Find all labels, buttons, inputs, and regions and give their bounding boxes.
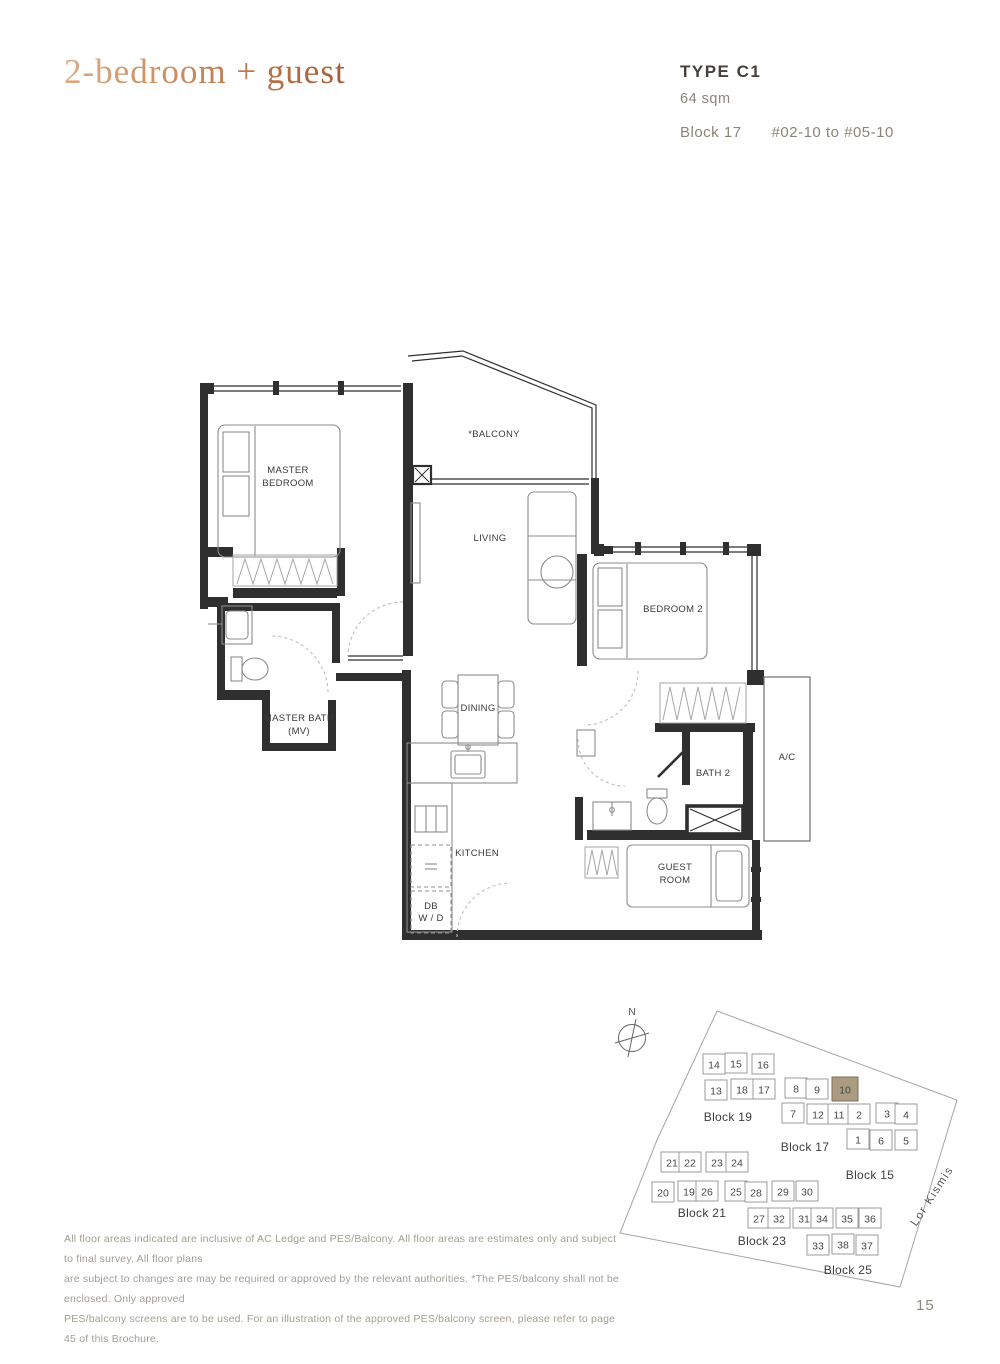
sitemap-unit-number: 14: [708, 1060, 720, 1072]
site-buildings: 1415161318178910712112341652122232420192…: [652, 1053, 917, 1255]
sitemap-unit-number: 24: [731, 1158, 743, 1170]
fridge: [411, 845, 451, 887]
sitemap-unit-number: 29: [777, 1187, 789, 1199]
sitemap-unit-number: 26: [701, 1187, 713, 1199]
sitemap-unit-number: 28: [750, 1188, 762, 1200]
disclaimer-line: PES/balcony screens are to be used. For …: [64, 1309, 624, 1349]
room-label-kitchen: KITCHEN: [455, 848, 499, 859]
unit-range: #02-10 to #05-10: [772, 124, 894, 141]
sitemap-block-label: Block 17: [781, 1140, 829, 1154]
room-label-guest: GUESTROOM: [658, 862, 692, 886]
sitemap-unit-number: 17: [758, 1085, 770, 1097]
washer-dryer: [411, 891, 451, 933]
sitemap-unit-number: 31: [798, 1214, 810, 1226]
sitemap-unit-number: 20: [657, 1188, 669, 1200]
sitemap-unit-number: 9: [814, 1085, 820, 1097]
toilet-1: [231, 657, 242, 681]
sitemap-unit-number: 23: [711, 1158, 723, 1170]
sitemap-unit-number: 34: [816, 1214, 828, 1226]
sitemap-unit-number: 35: [841, 1214, 853, 1226]
sitemap-unit-number: 27: [753, 1214, 765, 1226]
sitemap-unit-number: 11: [834, 1110, 845, 1122]
sitemap-unit-number: 18: [736, 1085, 748, 1097]
sitemap-block-label: Block 19: [704, 1110, 752, 1124]
round-chair: [541, 556, 573, 588]
room-label-ac: A/C: [779, 752, 796, 763]
brochure-page: 2-bedroom + guest TYPE C1 64 sqm Block 1…: [0, 0, 1000, 1364]
floor-plan: MASTERBEDROOM *BALCONY LIVING BEDROOM 2 …: [195, 340, 845, 955]
sitemap-unit-number: 33: [812, 1241, 824, 1253]
unit-area: 64 sqm: [680, 91, 894, 107]
sitemap-unit-number: 38: [837, 1240, 849, 1252]
sitemap-block-label: Block 25: [824, 1263, 872, 1277]
sitemap-unit-number: 16: [757, 1060, 769, 1072]
sitemap-unit-number: 19: [683, 1187, 695, 1199]
unit-location: Block 17 #02-10 to #05-10: [680, 124, 894, 141]
sitemap-block-label: Block 23: [738, 1234, 786, 1248]
room-label-bath2: BATH 2: [696, 768, 730, 779]
page-title: 2-bedroom + guest: [64, 52, 346, 92]
unit-info-header: TYPE C1 64 sqm Block 17 #02-10 to #05-10: [680, 62, 894, 141]
unit-type: TYPE C1: [680, 62, 894, 82]
sitemap-unit-number: 13: [710, 1086, 722, 1098]
site-map: N 14151613181789107121123416521222324201…: [608, 1002, 1000, 1302]
sofa: [528, 492, 576, 624]
sitemap-unit-number: 12: [812, 1110, 824, 1122]
disclaimer-line: All floor areas indicated are inclusive …: [64, 1229, 624, 1269]
room-label-dining: DINING: [460, 703, 495, 714]
sitemap-unit-number: 25: [730, 1187, 742, 1199]
room-label-master-bath: MASTER BATH(MV): [264, 713, 334, 737]
room-label-master-bedroom: MASTERBEDROOM: [262, 465, 313, 489]
sitemap-unit-number: 37: [861, 1241, 873, 1253]
room-label-bedroom2: BEDROOM 2: [643, 604, 703, 615]
sitemap-unit-number: 10: [839, 1085, 851, 1097]
cooktop: [415, 806, 447, 832]
road-label: Lor Kismis: [909, 1164, 956, 1228]
sitemap-unit-number: 8: [793, 1084, 799, 1096]
room-label-living: LIVING: [474, 533, 507, 544]
master-bed: [218, 425, 340, 557]
sitemap-unit-number: 15: [730, 1059, 742, 1071]
sitemap-unit-number: 5: [903, 1136, 909, 1148]
sitemap-unit-number: 30: [801, 1187, 813, 1199]
sitemap-unit-number: 7: [790, 1109, 796, 1121]
sitemap-unit-number: 2: [856, 1110, 862, 1122]
sitemap-block-label: Block 21: [678, 1206, 726, 1220]
toilet-2: [647, 789, 667, 798]
sitemap-unit-number: 4: [903, 1110, 909, 1122]
disclaimer-line: are subject to changes are may be requir…: [64, 1269, 624, 1309]
room-label-db-wd: DBW / D: [418, 901, 443, 924]
unit-block: Block 17: [680, 124, 742, 141]
page-number: 15: [916, 1297, 935, 1314]
room-label-balcony: *BALCONY: [468, 429, 520, 440]
disclaimer: All floor areas indicated are inclusive …: [64, 1229, 624, 1349]
sitemap-unit-number: 3: [884, 1109, 890, 1121]
sitemap-unit-number: 21: [666, 1158, 678, 1170]
compass-north-label: N: [628, 1006, 636, 1018]
kitchen-island: [407, 743, 517, 783]
sitemap-unit-number: 36: [864, 1214, 876, 1226]
sitemap-unit-number: 32: [773, 1214, 785, 1226]
sitemap-unit-number: 22: [684, 1158, 696, 1170]
sitemap-unit-number: 6: [878, 1136, 884, 1148]
sitemap-unit-number: 1: [855, 1135, 861, 1147]
sitemap-block-label: Block 15: [846, 1168, 894, 1182]
compass: N: [615, 1006, 649, 1057]
